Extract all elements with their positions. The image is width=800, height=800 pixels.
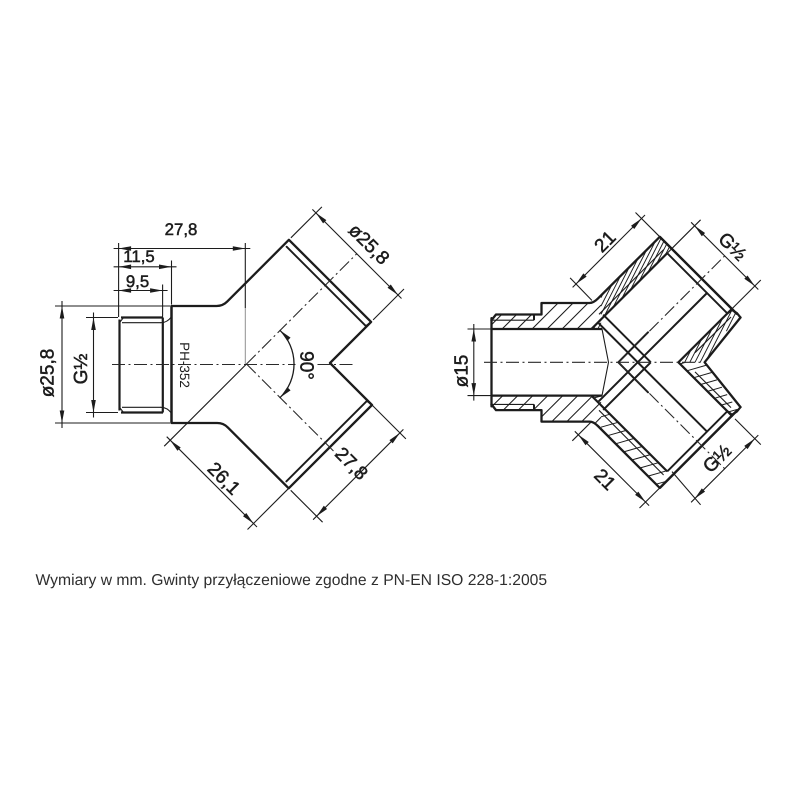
svg-text:9,5: 9,5 [126, 272, 149, 291]
svg-text:11,5: 11,5 [123, 247, 154, 266]
svg-text:ø25,8: ø25,8 [38, 349, 59, 398]
svg-text:27,8: 27,8 [165, 220, 198, 239]
svg-text:90°: 90° [296, 351, 317, 380]
svg-text:ø15: ø15 [452, 355, 473, 388]
svg-text:Wymiary w mm. Gwinty przyłącze: Wymiary w mm. Gwinty przyłączeniowe zgod… [36, 572, 548, 589]
svg-text:G½: G½ [71, 354, 92, 385]
